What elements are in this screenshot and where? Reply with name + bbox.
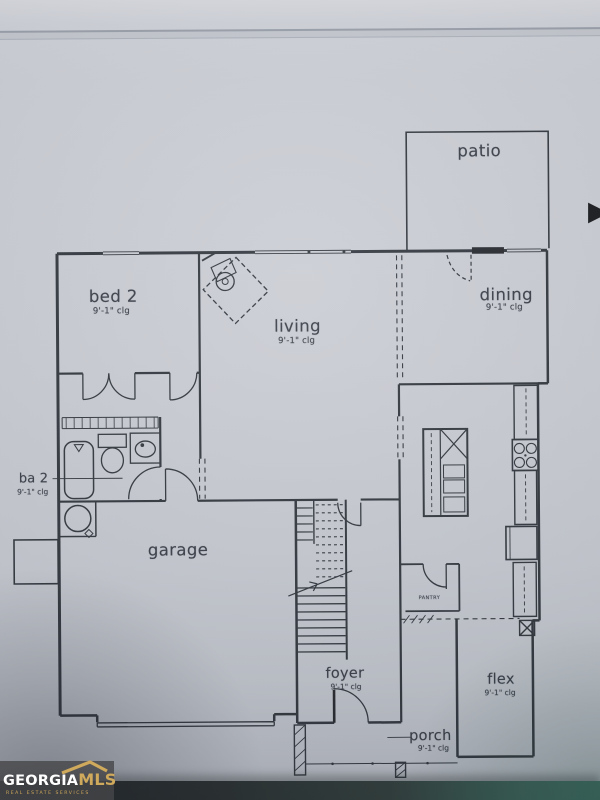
water-heater-icon (59, 501, 96, 537)
floorplan: patio bed 2 9'-1" clg living 9'-1" clg d… (0, 0, 600, 800)
leader-lines (53, 476, 412, 739)
room-label-patio: patio (457, 141, 501, 160)
doors (83, 371, 447, 725)
room-label-bed2: bed 2 (89, 287, 138, 306)
hvac-pad (14, 540, 58, 584)
garage-door (97, 722, 274, 727)
room-label-flex: flex (487, 672, 515, 688)
watermark-tagline: REAL ESTATE SERVICES (6, 791, 90, 796)
room-label-pantry: PANTRY (419, 595, 441, 601)
watermark-brand-mls: MLS (78, 770, 116, 789)
closet-shelf (62, 417, 158, 429)
bathtub-icon (64, 441, 93, 498)
refrigerator-icon (506, 526, 537, 559)
room-label-dining: dining (479, 285, 533, 304)
listing-photo: patio bed 2 9'-1" clg living 9'-1" clg d… (0, 0, 600, 800)
ceiling-height-porch: 9'-1" clg (418, 743, 449, 752)
ceiling-height-ba2: 9'-1" clg (17, 487, 48, 496)
cooktop-icon (512, 439, 538, 470)
ceiling-height-flex: 9'-1" clg (484, 688, 515, 697)
room-label-foyer: foyer (325, 666, 364, 682)
watermark: GEORGIAMLS REAL ESTATE SERVICES (0, 761, 114, 800)
toilet-icon (98, 434, 126, 473)
ceiling-height-living: 9'-1" clg (278, 336, 315, 346)
cased-openings (198, 254, 520, 620)
room-label-garage: garage (148, 540, 209, 559)
ceiling-height-foyer: 9'-1" clg (330, 682, 361, 691)
fireplace-icon (203, 257, 268, 323)
sink-icon (130, 433, 160, 463)
watermark-brand-georgia: GEORGIA (3, 773, 78, 789)
ceiling-height-bed2: 9'-1" clg (93, 306, 130, 316)
room-label-living: living (274, 316, 321, 335)
kitchen-counters (512, 385, 540, 616)
kitchen-island (423, 429, 468, 516)
room-label-ba2: ba 2 (19, 471, 49, 486)
room-label-porch: porch (409, 728, 452, 744)
ceiling-height-dining: 9'-1" clg (486, 302, 523, 312)
pantry-closet (400, 564, 459, 611)
next-arrow-icon[interactable]: ▶ (588, 198, 600, 225)
watermark-brand: GEORGIAMLS (3, 772, 116, 789)
